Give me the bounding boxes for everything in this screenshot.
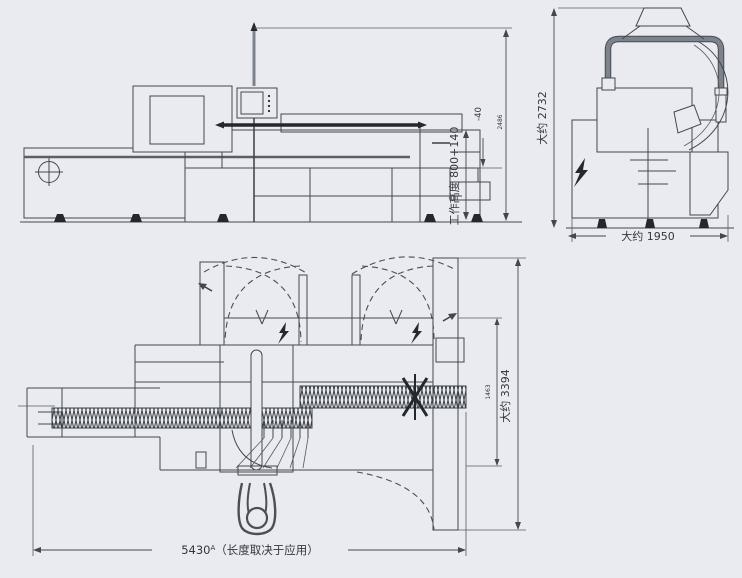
nozzle	[716, 95, 726, 122]
door-column-left	[200, 262, 224, 345]
length-value: 5430	[181, 543, 210, 557]
control-panel	[237, 88, 277, 118]
machine-feet	[597, 219, 709, 228]
panel-button	[268, 100, 270, 102]
machine-dimension-drawing: 工作高度 800+140 -40 2486	[0, 0, 742, 578]
guide-slot	[251, 350, 262, 470]
infeed-conveyor	[24, 148, 410, 218]
dimension-depth: 大约 3394	[458, 258, 526, 530]
work-height-tolerance-label: -40	[474, 107, 484, 121]
panel-button	[268, 105, 270, 107]
belt-arrow-right	[418, 122, 427, 129]
panel-button	[268, 110, 270, 112]
dimension-height: 大约 2732	[535, 8, 557, 228]
outfeed-steps	[432, 143, 502, 200]
side-view: 工作高度 800+140 -40 2486	[20, 22, 522, 225]
front-view: 大约 1950 大约 2732	[535, 8, 734, 243]
plan-view: 大约 3394 1463 5430A（长度取决于应用）	[18, 257, 526, 557]
operator-head	[247, 508, 267, 528]
length-label: 5430A（长度取决于应用）	[181, 543, 319, 557]
work-height-label: 工作高度 800+140	[447, 127, 461, 226]
inner-width-label: 1463	[485, 384, 492, 399]
height-label: 大约 2732	[535, 91, 549, 145]
swing-arc-wide	[352, 257, 456, 274]
signal-mast	[251, 22, 513, 222]
lightning-bolt-icon	[411, 322, 422, 344]
hinge-post	[352, 275, 360, 345]
width-label: 大约 1950	[621, 229, 675, 243]
panel-button	[268, 95, 270, 97]
upper-housing	[133, 86, 232, 152]
operator-symbol	[239, 483, 276, 534]
nozzle-cap	[715, 88, 727, 95]
lightning-bolt-icon	[278, 322, 289, 344]
mast-arrow	[251, 22, 258, 31]
total-height-label: 2486	[497, 114, 504, 129]
side-panel	[690, 152, 728, 215]
boom-top-plate	[636, 8, 690, 26]
technical-drawing: 工作高度 800+140 -40 2486	[0, 0, 742, 578]
length-note: （长度取决于应用）	[215, 543, 319, 557]
lower-door	[196, 430, 277, 475]
boom-clamp	[602, 78, 615, 90]
side-bracket	[436, 338, 464, 362]
dimension-total-height: 2486	[497, 29, 509, 221]
swing-arc-bottom	[357, 472, 434, 530]
depth-label: 大约 3394	[498, 369, 512, 423]
